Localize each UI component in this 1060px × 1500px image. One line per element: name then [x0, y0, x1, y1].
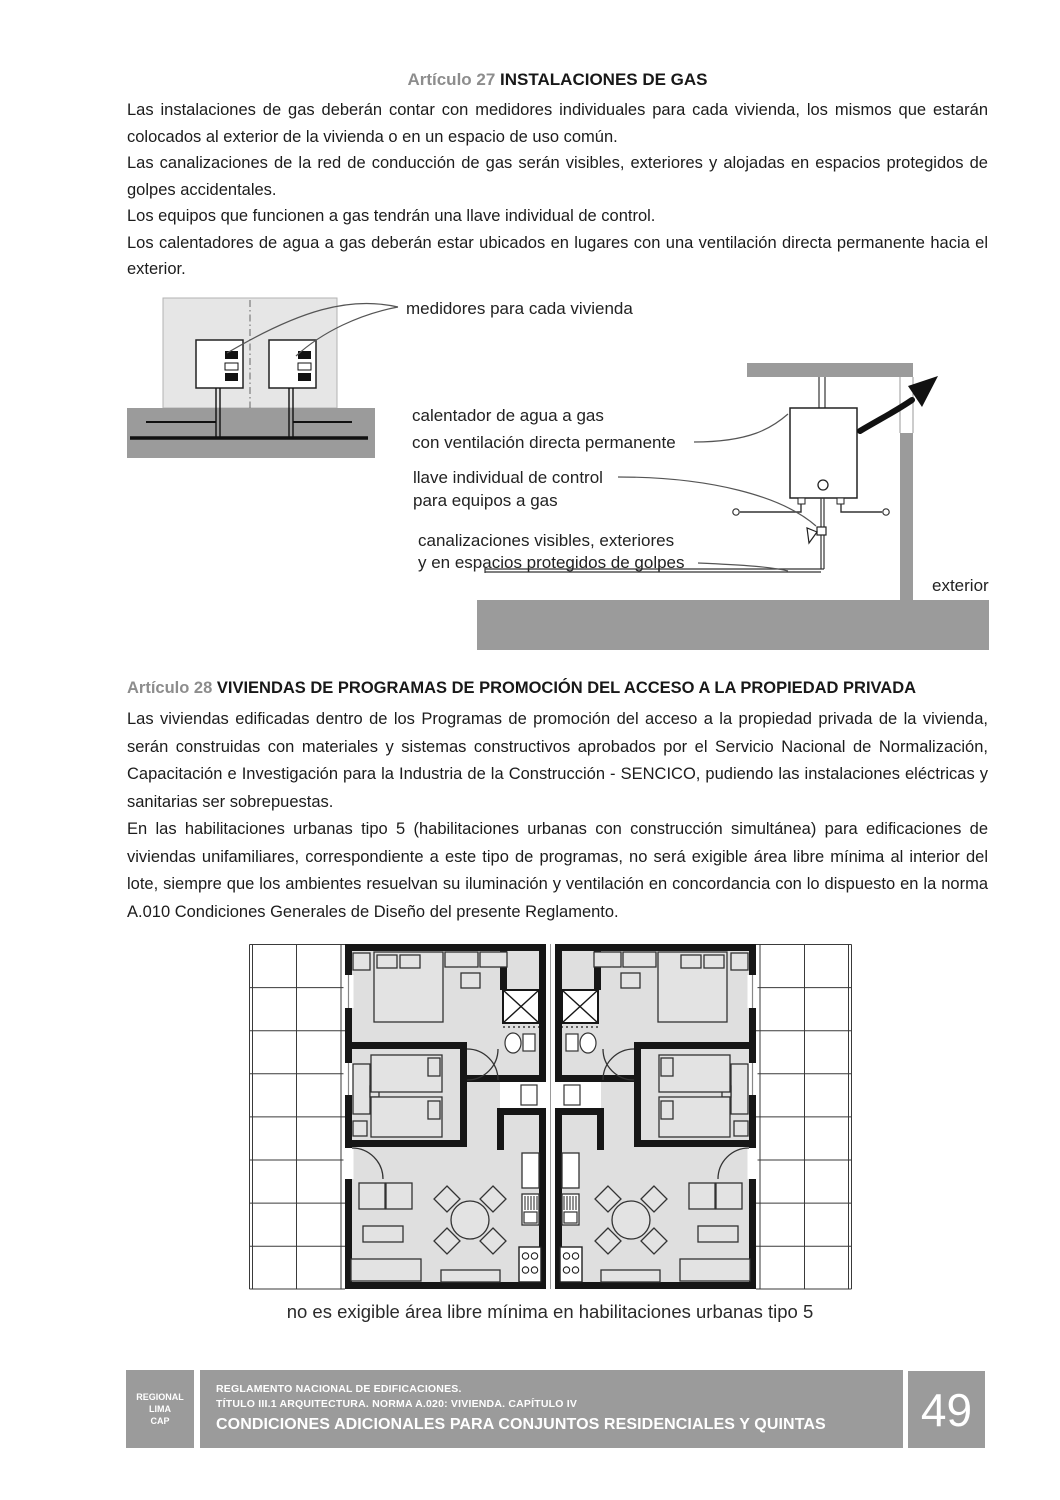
article27-label: Artículo 27 [407, 70, 495, 89]
exterior-wall [900, 433, 913, 600]
footer-org-line: CAP [150, 1415, 169, 1427]
article28-body: Las viviendas edificadas dentro de los P… [127, 706, 988, 926]
floor-plan-diagram [249, 929, 853, 1295]
footer-doc-line3: CONDICIONES ADICIONALES PARA CONJUNTOS R… [216, 1414, 903, 1436]
footer-doc-box: REGLAMENTO NACIONAL DE EDIFICACIONES. TÍ… [200, 1370, 903, 1448]
ground-left [127, 408, 375, 458]
paragraph: Los calentadores de agua a gas deberán e… [127, 230, 988, 283]
label-exterior: exterior [932, 576, 989, 595]
paragraph: Las viviendas edificadas dentro de los P… [127, 706, 988, 816]
document-page: Artículo 27 INSTALACIONES DE GAS Las ins… [0, 0, 1060, 1500]
lavatory [521, 1085, 537, 1105]
label-llave-1: llave individual de control [413, 468, 603, 487]
gas-installation-diagram: medidores para cada vivienda calentador … [110, 288, 1000, 660]
floor-plan-caption: no es exigible área libre mínima en habi… [130, 1301, 970, 1323]
stove [519, 1247, 541, 1282]
gas-meter-box [269, 340, 316, 388]
footer-org-line: REGIONAL [136, 1391, 184, 1403]
kitchen-strip [519, 1153, 541, 1282]
footer-doc-line2: TÍTULO III.1 ARQUITECTURA. NORMA A.020: … [216, 1397, 903, 1412]
article28-label: Artículo 28 [127, 679, 212, 697]
exhaust-arrow [860, 376, 938, 431]
water-heater [790, 408, 857, 504]
paragraph: Las instalaciones de gas deberán contar … [127, 97, 988, 150]
article27-title: INSTALACIONES DE GAS [500, 70, 707, 89]
shaft-x-box [503, 990, 539, 1027]
paragraph: Las canalizaciones de la red de conducci… [127, 150, 988, 203]
footer-org-box: REGIONAL LIMA CAP [126, 1370, 194, 1448]
article27-body: Las instalaciones de gas deberán contar … [127, 97, 988, 283]
control-valve [807, 527, 826, 543]
paragraph: Los equipos que funcionen a gas tendrán … [127, 203, 988, 230]
article28-heading: Artículo 28 VIVIENDAS DE PROGRAMAS DE PR… [127, 679, 997, 698]
footer-org-line: LIMA [149, 1403, 171, 1415]
article28-title: VIVIENDAS DE PROGRAMAS DE PROMOCIÓN DEL … [217, 679, 916, 697]
dwelling-unit [344, 944, 547, 1289]
label-medidores: medidores para cada vivienda [406, 299, 633, 318]
paragraph: En las habilitaciones urbanas tipo 5 (ha… [127, 816, 988, 926]
site-grid [250, 945, 346, 1290]
ground-right [477, 600, 989, 650]
entry-opening [344, 1148, 354, 1179]
label-llave-2: para equipos a gas [413, 491, 558, 510]
footer-page-number: 49 [908, 1371, 985, 1448]
label-canalizaciones-2: y en espacios protegidos de golpes [418, 553, 685, 572]
article27-heading: Artículo 27 INSTALACIONES DE GAS [127, 70, 988, 90]
label-calentador-1: calentador de agua a gas [412, 406, 604, 425]
footer-doc-line1: REGLAMENTO NACIONAL DE EDIFICACIONES. [216, 1382, 903, 1397]
label-canalizaciones-1: canalizaciones visibles, exteriores [418, 531, 674, 550]
gas-meters-building [127, 298, 375, 458]
label-calentador-2: con ventilación directa permanente [412, 433, 676, 452]
ceiling-slab [747, 363, 913, 377]
